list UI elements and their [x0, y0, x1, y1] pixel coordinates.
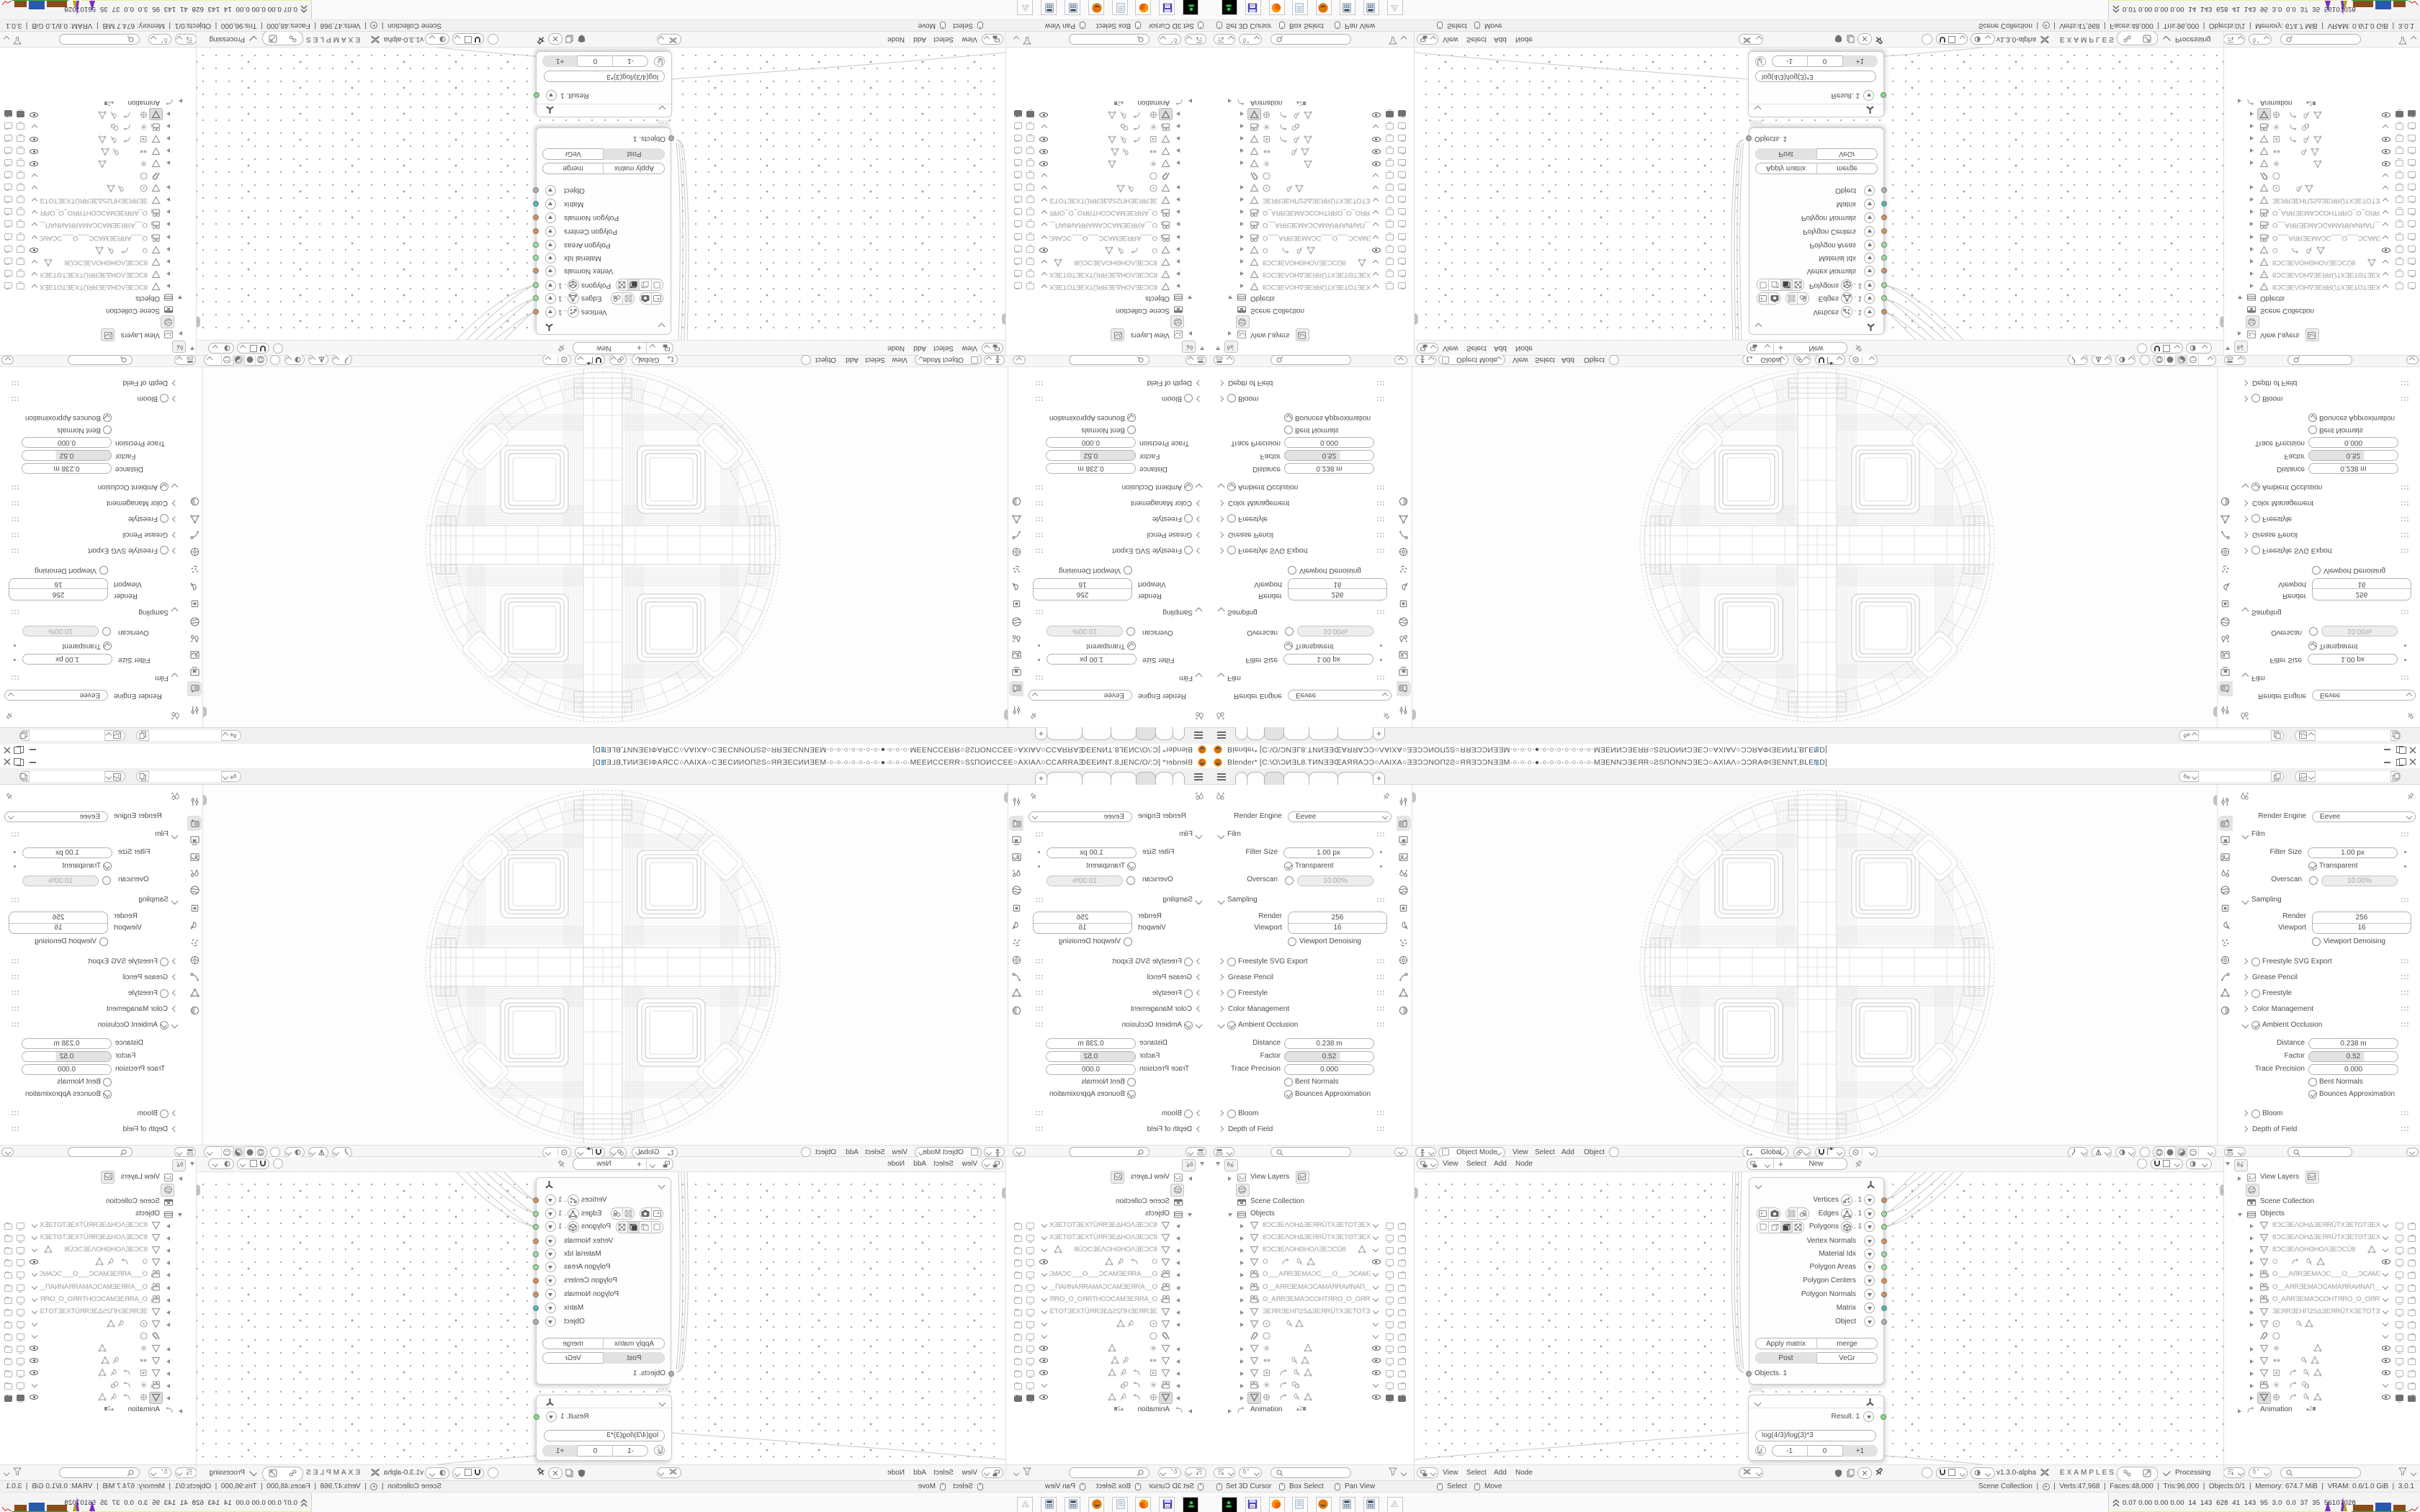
svg-text:64: 64: [1165, 4, 1169, 8]
svg-text:64: 64: [1251, 1504, 1255, 1508]
svg-text:64: 64: [1251, 4, 1255, 8]
svg-text:64: 64: [1165, 1504, 1169, 1508]
